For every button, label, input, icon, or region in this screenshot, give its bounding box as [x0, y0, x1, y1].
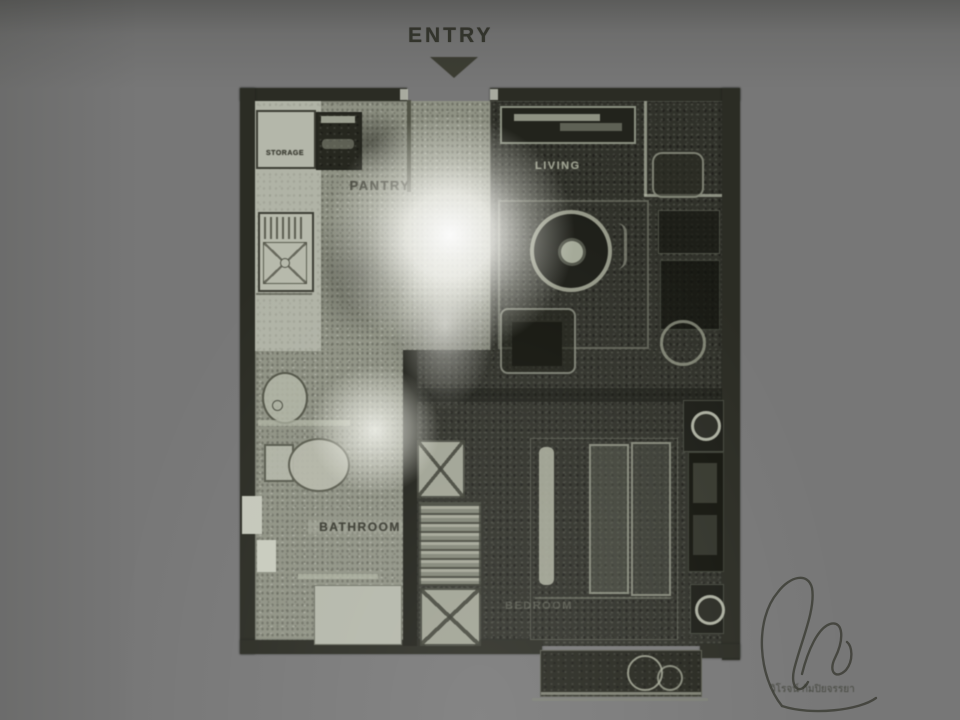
round-table: [530, 210, 612, 292]
lamp-icon: [695, 595, 725, 625]
signature-name-text: วิโรจน์ กัมปิยจรรยา: [770, 682, 940, 697]
door-jamb: [490, 89, 498, 100]
dining-chair-arc: [608, 223, 627, 269]
ac-condenser-icon: [657, 665, 683, 691]
wall-right: [722, 88, 740, 660]
bathroom-door-niche: [242, 496, 262, 534]
entry-arrow-icon: [430, 57, 478, 78]
storage-label: STORAGE: [260, 150, 310, 157]
bed-footline: [535, 597, 671, 599]
side-cabinet: [660, 260, 720, 330]
bathroom-shelf: [258, 420, 350, 426]
bed-mattress-panel: [631, 442, 671, 596]
wall-left: [240, 88, 255, 654]
sofa-seat: [512, 322, 562, 366]
nightstand: [690, 584, 724, 634]
entry-label: ENTRY: [408, 24, 528, 50]
sink-drain: [280, 258, 290, 268]
kitchen-sink: [258, 212, 314, 292]
living-partition-line: [644, 101, 647, 196]
living-label: LIVING: [535, 160, 625, 172]
wardrobe-divider-wall: [403, 350, 417, 646]
tv-shelf: [560, 123, 622, 131]
washer-appliance: [316, 112, 362, 170]
dresser-drawer: [693, 515, 717, 555]
tv-console: [500, 106, 636, 144]
bathroom-door-track: [298, 574, 378, 579]
sink-drainboard: [264, 217, 304, 239]
bathroom-basin: [262, 372, 308, 424]
sink-basin: [263, 242, 307, 284]
wall-top-left: [240, 88, 407, 101]
appliance-label-strip: [321, 116, 355, 123]
pantry-label: PANTRY: [325, 178, 435, 193]
storage-closet: STORAGE: [256, 110, 316, 169]
toilet-bowl: [288, 438, 350, 492]
counter-divider: [256, 293, 312, 295]
photographed-document: ENTRY STORAGE: [0, 0, 960, 720]
sofa: [500, 308, 576, 374]
dresser-drawer: [693, 463, 717, 503]
lamp-icon: [691, 411, 721, 441]
shower-pan: [314, 585, 402, 645]
chair-ring: [660, 320, 706, 366]
table-centerpiece: [558, 238, 586, 266]
bathroom-door-niche: [257, 540, 276, 572]
wardrobe-xbox: [417, 440, 465, 498]
side-cabinet: [658, 210, 720, 254]
wall-bottom-right: [700, 644, 740, 658]
bedroom-label: BEDROOM: [505, 600, 615, 614]
armchair: [652, 152, 704, 198]
door-jamb: [400, 89, 408, 100]
wall-top-right: [490, 88, 740, 101]
bed-bolster: [539, 447, 554, 585]
balcony-outline: [532, 698, 708, 701]
bed-mattress-panel: [589, 444, 629, 594]
nightstand: [683, 400, 724, 452]
appliance-drum: [322, 139, 354, 149]
tv-unit: [514, 114, 600, 121]
balcony: [540, 650, 702, 697]
wardrobe-xbox: [420, 588, 481, 646]
wardrobe-shelves: [419, 502, 481, 586]
bathroom-label: BATHROOM: [308, 520, 412, 534]
floor-plan: STORAGE PANTRY LIVING: [240, 88, 740, 666]
balcony-rail: [541, 692, 701, 695]
basin-drain: [272, 400, 283, 411]
dresser: [688, 452, 724, 572]
